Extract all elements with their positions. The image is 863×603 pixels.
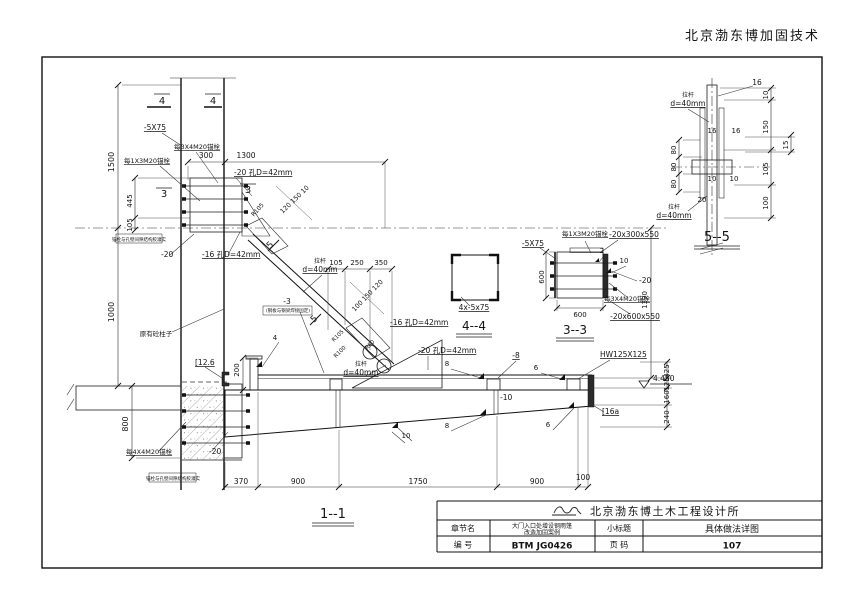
section-mark-5: 5	[309, 314, 320, 325]
drawing-label: 拉杆	[668, 203, 680, 211]
drawing-label: 每1X3M20锚栓	[562, 229, 609, 238]
drawing-label: [12.6	[195, 358, 215, 367]
drawing-label: 100 150 120	[350, 278, 384, 313]
drawing-label: 600	[538, 270, 546, 283]
stub-post	[567, 379, 580, 390]
drawing-label: 900	[291, 477, 306, 486]
company-logo-icon	[552, 507, 581, 515]
drawing-label: -8	[512, 351, 520, 360]
drawing-label: [16a	[602, 407, 619, 416]
drawing-label: 100	[762, 196, 770, 209]
edge-channel-16a	[588, 375, 594, 407]
drawing-label: 350	[374, 259, 387, 267]
drawing-label: 240	[663, 410, 671, 423]
drawing-label: 100	[576, 473, 591, 482]
drawing-label: 10	[620, 257, 629, 265]
number-value: BTM JG0426	[512, 542, 573, 552]
drawing-label: -3	[283, 297, 291, 306]
drawing-label: 160	[663, 390, 671, 403]
stub-post	[487, 379, 500, 390]
drawing-label: HW125X125	[600, 350, 647, 359]
subtitle-value: 具体做法详图	[705, 523, 759, 535]
drawing-label: 10	[402, 432, 411, 440]
drawing-label: 6	[534, 364, 539, 372]
section-mark-3: 3	[245, 185, 251, 196]
drawing-label: 每1X3M20锚栓	[124, 156, 171, 165]
drawing-label: 800	[121, 416, 130, 431]
drawing-label: 370	[234, 477, 249, 486]
section-mark-5: 5	[265, 240, 276, 251]
title-underline	[312, 523, 354, 526]
header-text: 北京渤东博加固技术	[685, 28, 820, 44]
drawing-label: 20	[698, 196, 707, 204]
title-3-3: 3--3	[563, 323, 587, 337]
drawing-label: 15	[782, 141, 790, 150]
drawing-label: R80	[364, 339, 376, 351]
centerlines	[75, 78, 770, 382]
drawing-label: d=40mm	[670, 99, 705, 108]
drawing-label: 8	[445, 360, 449, 368]
drawing-label: 125	[663, 377, 671, 390]
drawing-page: 北京渤东博加固技术	[0, 0, 863, 603]
drawing-label: R105	[250, 202, 266, 218]
drawing-label: 10	[708, 175, 717, 183]
pagecode-value: 107	[723, 542, 742, 552]
drawing-label: 每3X4M20锚栓	[174, 142, 221, 151]
company-name: 北京渤东博土木工程设计所	[590, 504, 740, 518]
section-mark-4: 4	[159, 96, 165, 107]
title-block: 北京渤东博土木工程设计所 章节名 大门入口处增设钢雨篷 改造加固案例 小标题 具…	[437, 501, 822, 552]
corner-plates	[452, 255, 498, 300]
drawing-label: -20x600x550	[610, 312, 660, 321]
drawing-label: 250	[350, 259, 363, 267]
chapter-value-line2: 改造加固案例	[524, 529, 560, 537]
section-mark-4: 4	[210, 96, 216, 107]
drawing-label: 80	[670, 180, 678, 189]
subtitle-label: 小标题	[607, 523, 631, 533]
drawing-label: 4x-5x75	[459, 303, 490, 312]
drawing-label: R105	[331, 329, 346, 344]
detail-5-5	[679, 85, 795, 254]
drawing-label: 80	[670, 163, 678, 172]
section-cut-marks	[147, 94, 321, 325]
annotation-labels: 44-5X751500每3X4M20锚栓每1X3M20锚栓3001300-20 …	[107, 78, 790, 522]
drawing-label: 16	[708, 127, 717, 135]
drawing-label: 16	[752, 78, 762, 87]
drawing-label: -20	[639, 276, 651, 285]
drawing-label: -5X75	[144, 123, 166, 132]
title-5-5: 5--5	[704, 230, 730, 245]
drawing-label: -5X75	[522, 239, 544, 248]
drawing-label: -20	[161, 250, 173, 259]
drawing-label: 1750	[408, 477, 427, 486]
drawing-label: 105	[126, 218, 134, 231]
edge-post	[250, 359, 258, 390]
drawing-label: 900	[530, 477, 545, 486]
drawing-label: 4	[273, 334, 278, 342]
drawing-label: 锚栓与孔壁间隙结构胶灌实	[146, 475, 200, 482]
drawing-label: 拉杆	[355, 360, 367, 368]
drawing-label: -20x300x550	[609, 230, 659, 239]
drawing-label: 600	[573, 311, 586, 319]
drawing-label: 16	[732, 127, 741, 135]
drawing-label: 拉杆	[682, 91, 694, 99]
drawing-label: 1500	[107, 152, 116, 172]
drawing-label: -20 孔D=42mm	[234, 168, 292, 177]
drawing-label: 445	[126, 194, 134, 207]
drawing-label: 10	[730, 175, 739, 183]
drawing-label: 2	[600, 247, 604, 255]
drawing-label: 8	[445, 422, 449, 430]
stub-post	[330, 379, 342, 390]
drawing-label: -20 孔D=42mm	[418, 346, 476, 355]
drawing-label: 1000	[107, 302, 116, 322]
drawing-label: -20	[209, 447, 221, 456]
number-label: 编 号	[454, 540, 473, 550]
drawing-label: 425	[663, 364, 671, 377]
drawing-label: 150	[762, 120, 770, 133]
drawing-label: 80	[670, 146, 678, 155]
title-4-4: 4--4	[462, 319, 486, 333]
drawing-label: 1300	[236, 151, 255, 160]
drawing-label: 每4X4M20锚栓	[126, 447, 173, 456]
section-mark-3: 3	[161, 189, 167, 200]
drawing-label: 105	[329, 259, 342, 267]
anchor-bolt-heads	[182, 186, 248, 225]
drawing-label: R100	[333, 345, 348, 360]
drawing-label: 锚栓与孔壁间隙结构胶灌实	[112, 236, 166, 243]
drawing-label: -16 孔D=42mm	[202, 250, 260, 259]
drawing-label: 1390	[641, 291, 649, 309]
chapter-label: 章节名	[451, 523, 475, 533]
cad-drawing-svg: 北京渤东博加固技术	[0, 0, 863, 603]
canopy-beam	[225, 356, 594, 437]
drawing-label: -10	[500, 393, 512, 402]
drawing-label: 105	[762, 162, 770, 175]
drawing-label: d=40mm	[656, 211, 691, 220]
drawing-label: 200	[233, 363, 241, 376]
drawing-label: 6	[546, 421, 551, 429]
drawing-label: (钢板与钢梁焊接固定)	[266, 307, 310, 314]
drawing-label: 300	[199, 151, 214, 160]
drawing-label: 10	[762, 91, 770, 100]
drawing-label: -16 孔D=42mm	[390, 318, 448, 327]
title-1-1: 1--1	[320, 507, 346, 522]
pagecode-label: 页 码	[610, 541, 629, 550]
drawing-label: 原有砼柱子	[140, 329, 173, 338]
beam-web	[225, 390, 592, 437]
drawing-label: d=40mm	[343, 368, 378, 377]
channel-12-6	[222, 372, 229, 386]
stiffeners	[336, 390, 498, 427]
upper-gusset	[182, 178, 288, 254]
drawing-label: 120 150 10	[278, 184, 310, 216]
drawing-label: 拉杆	[314, 257, 326, 265]
